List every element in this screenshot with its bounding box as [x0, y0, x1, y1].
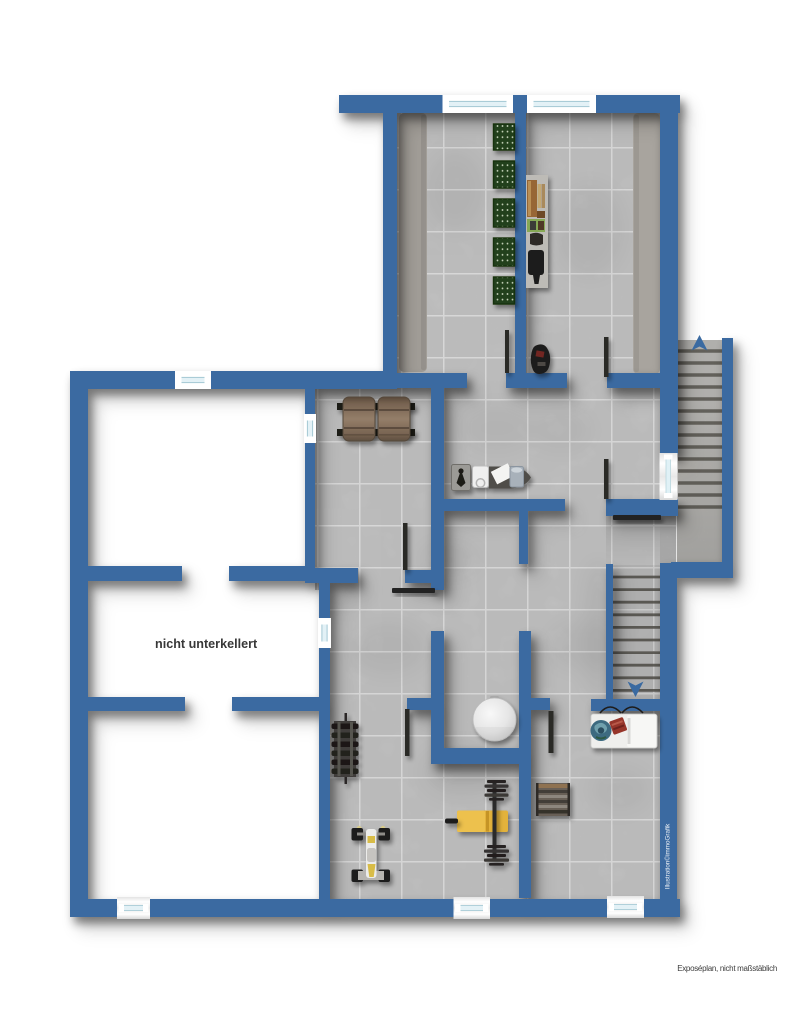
svg-text:nicht unterkellert: nicht unterkellert — [155, 637, 258, 651]
svg-text:Illustration©immoGrafik: Illustration©immoGrafik — [664, 823, 672, 889]
svg-text:Exposéplan, nicht maßstäblich: Exposéplan, nicht maßstäblich — [677, 964, 777, 973]
